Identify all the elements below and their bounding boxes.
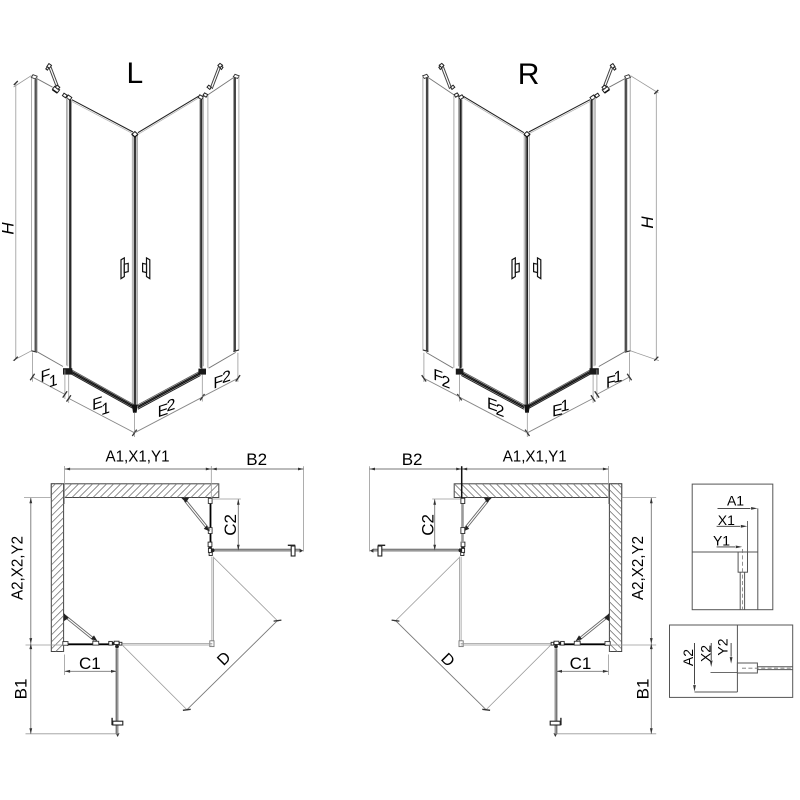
svg-text:1: 1 (49, 371, 58, 391)
svg-text:X1: X1 (718, 512, 735, 528)
svg-text:1: 1 (614, 367, 623, 387)
svg-text:B1: B1 (11, 679, 30, 700)
svg-text:H: H (0, 222, 17, 235)
svg-text:C1: C1 (79, 654, 101, 673)
svg-text:B1: B1 (634, 679, 653, 700)
svg-text:A2,X2,Y2: A2,X2,Y2 (10, 536, 27, 600)
svg-text:C2: C2 (221, 514, 240, 536)
svg-text:R: R (518, 58, 540, 91)
svg-text:X2: X2 (697, 645, 713, 662)
svg-text:A2: A2 (680, 649, 696, 666)
svg-text:Y2: Y2 (715, 638, 731, 655)
svg-text:2: 2 (222, 367, 231, 387)
svg-text:1: 1 (101, 399, 110, 419)
svg-text:A1: A1 (727, 493, 744, 509)
svg-text:2: 2 (442, 371, 451, 393)
svg-text:A2,X2,Y2: A2,X2,Y2 (630, 536, 647, 600)
svg-text:B2: B2 (402, 450, 423, 469)
svg-text:A1,X1,Y1: A1,X1,Y1 (106, 448, 170, 465)
svg-text:B2: B2 (246, 450, 267, 469)
svg-text:A1,X1,Y1: A1,X1,Y1 (503, 448, 567, 465)
svg-text:Y1: Y1 (713, 533, 730, 549)
svg-text:C2: C2 (419, 514, 438, 536)
svg-text:1: 1 (561, 396, 570, 416)
svg-text:H: H (638, 216, 657, 229)
svg-text:L: L (126, 57, 143, 90)
svg-text:2: 2 (496, 400, 505, 422)
svg-text:2: 2 (167, 395, 176, 415)
svg-text:C1: C1 (570, 654, 592, 673)
